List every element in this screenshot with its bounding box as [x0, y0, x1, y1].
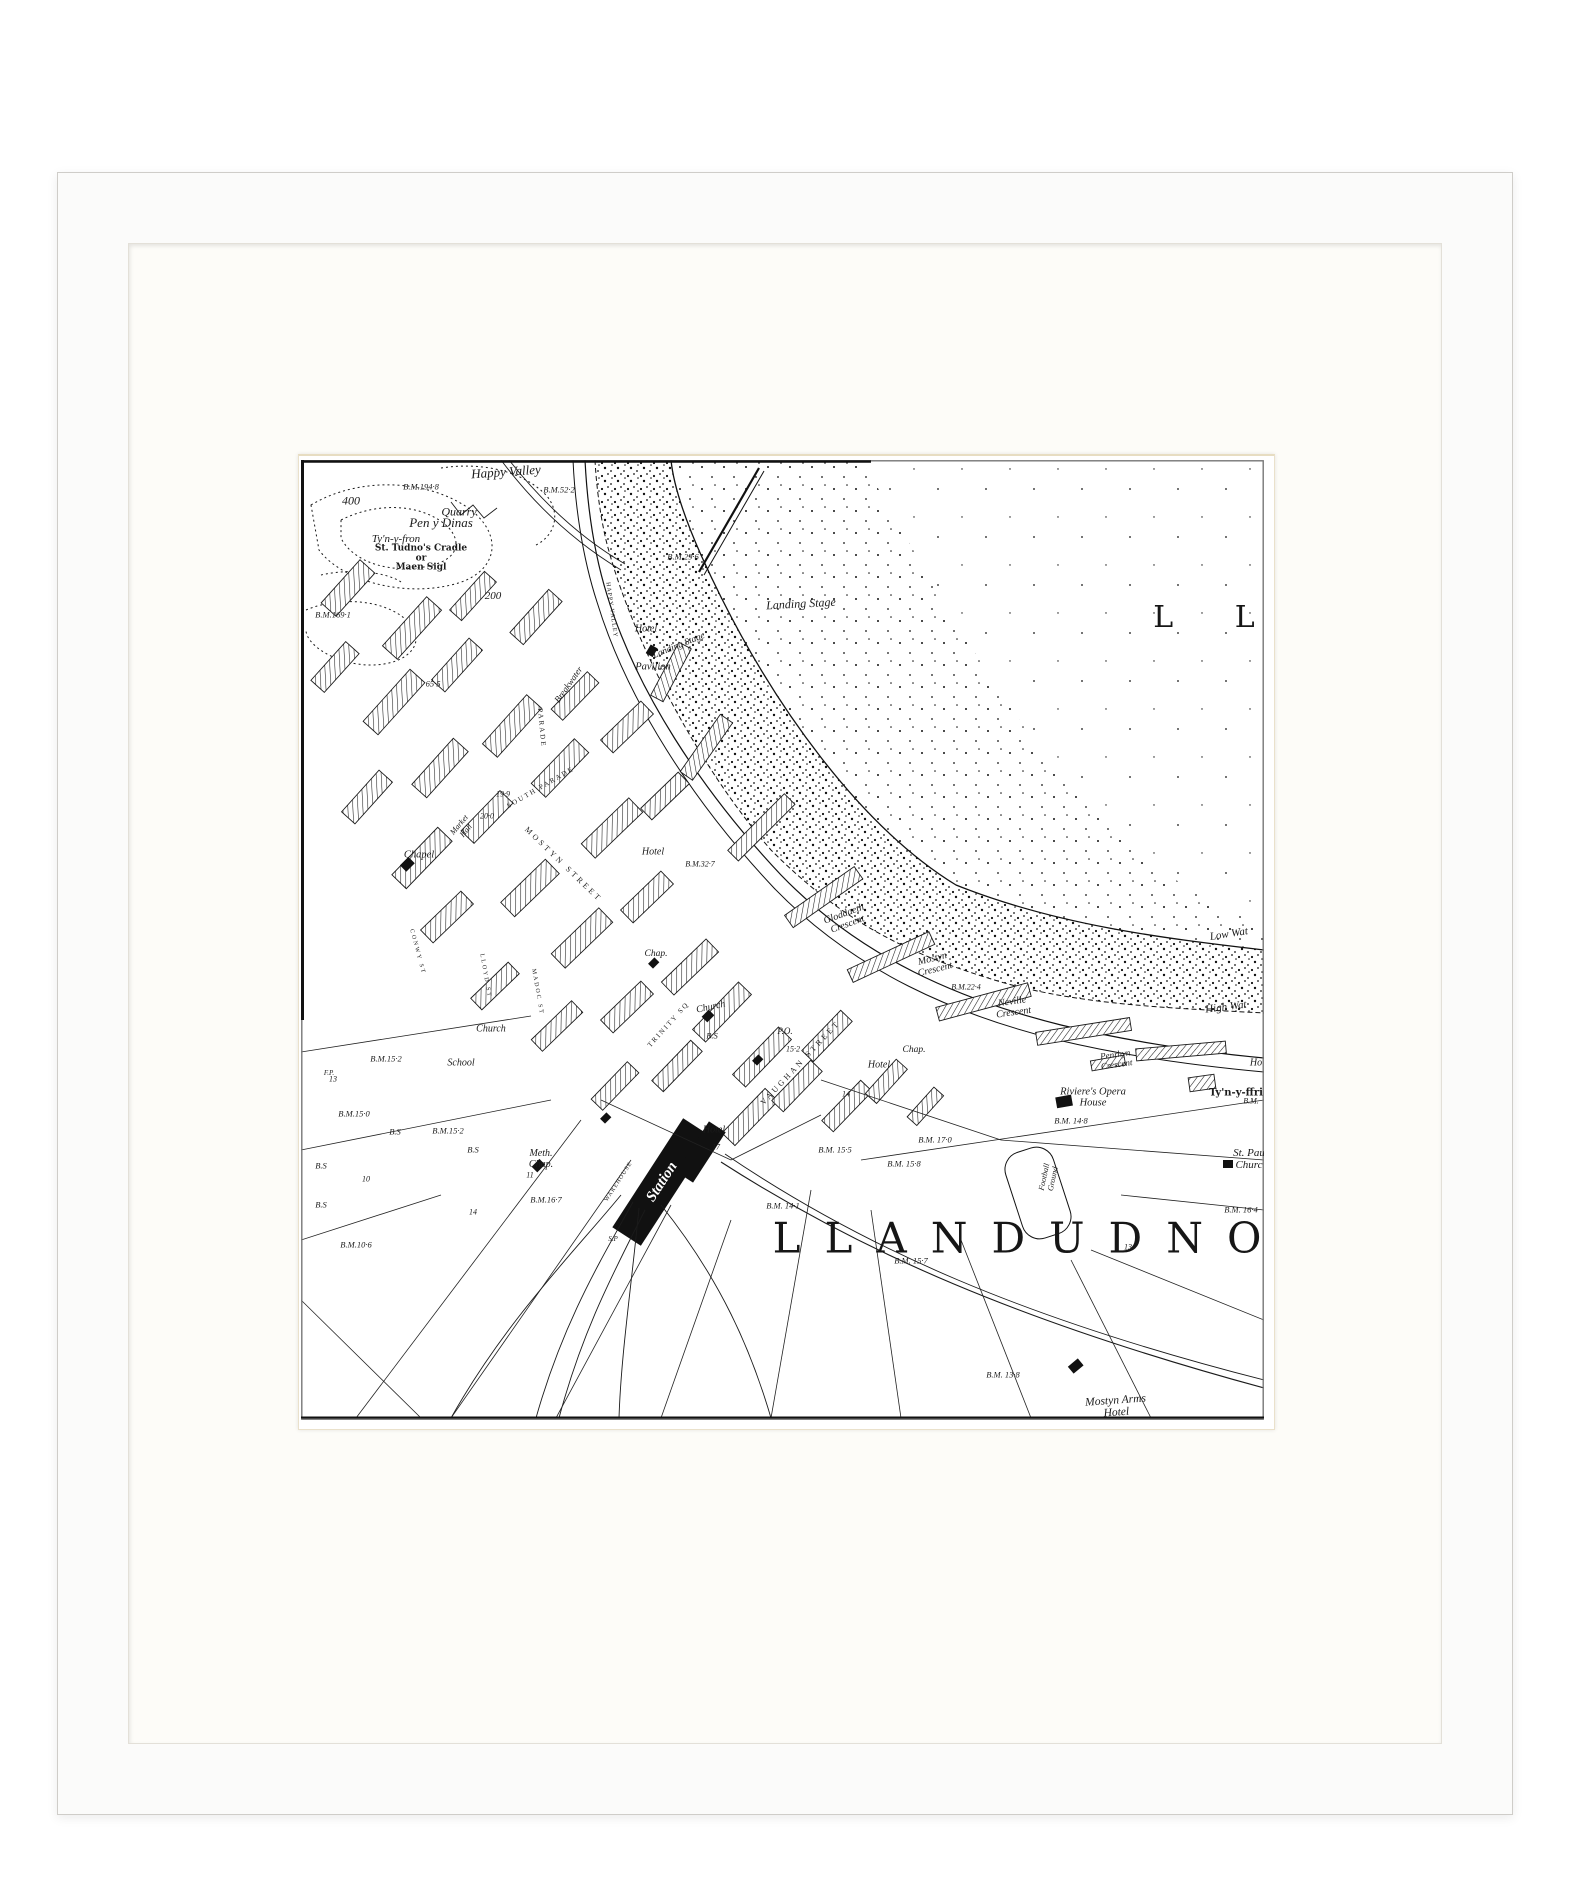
- map-label-church-trinity: Church: [695, 1000, 726, 1017]
- map-label-pen-y-dinas: Pen y Dinas: [409, 516, 473, 530]
- map-label-breakwater: Breakwater: [553, 665, 585, 705]
- map-area: L LLLANDUDNOHappy ValleyB.M.194·8B.M.52·…: [301, 460, 1264, 1420]
- map-label-po: P.O.: [777, 1027, 792, 1037]
- map-label-chapel-left: Chapel: [404, 849, 434, 860]
- map-label-bm-15-5: B.M. 15·5: [818, 1145, 852, 1154]
- map-label-bm-194-8: B.M.194·8: [403, 482, 439, 491]
- map-label-bm-22-4: B.M.22·4: [951, 984, 981, 993]
- map-label-bm-52-2: B.M.52·2: [543, 485, 574, 494]
- map-label-num-200: 200: [485, 591, 502, 603]
- map-label-station: Station: [643, 1159, 681, 1205]
- map-label-bs-4: B.S: [315, 1161, 327, 1170]
- map-label-chap-trinity: Chap.: [645, 949, 668, 959]
- map-label-happy-valley: Happy Valley: [471, 463, 541, 482]
- map-label-mostyn-arms: Mostyn Arms Hotel: [1085, 1393, 1147, 1420]
- map-label-num-65-5: 65·5: [426, 679, 441, 688]
- map-label-num-11: 11: [526, 1172, 533, 1181]
- map-label-bs-2: B.S: [389, 1127, 401, 1136]
- map-label-pavilion: Pavilion: [635, 661, 671, 672]
- map-label-ho-cut: Ho: [1250, 1059, 1262, 1070]
- map-label-num-15-2: 15·2: [786, 1046, 800, 1055]
- map-label-bm-32-7: B.M.32·7: [685, 861, 715, 870]
- map-label-bm-15-8: B.M. 15·8: [887, 1159, 921, 1168]
- map-label-low-water: Low Wat: [1209, 926, 1249, 944]
- map-label-num-19-9: 19·9: [496, 791, 510, 800]
- map-label-meth-chap: Meth. Chap.: [529, 1149, 553, 1171]
- map-label-bs-5: B.S: [315, 1200, 327, 1209]
- map-label-bm-10-6: B.M.10·6: [340, 1240, 371, 1249]
- map-label-bm-16-7: B.M.16·7: [530, 1195, 561, 1204]
- map-label-happy-valley-rd: HAPPY VALLEY: [604, 582, 618, 638]
- map-label-hotel-pier: Hotel: [635, 625, 657, 636]
- map-label-bm-13-8: B.M. 13·8: [986, 1370, 1020, 1379]
- map-label-num-14b: 14: [469, 1209, 477, 1218]
- map-label-num-10: 10: [362, 1176, 370, 1185]
- page-background: { "frame": { "frame_color": "#fbfbfa", "…: [0, 0, 1569, 1890]
- map-label-fp: F.P.: [324, 1070, 334, 1078]
- map-label-num-17: 17: [712, 1144, 720, 1153]
- map-label-bm-17-0: B.M. 17·0: [918, 1135, 952, 1144]
- map-label-bay-name: L L: [1153, 602, 1264, 634]
- map-label-mostyn-street: MOSTYN STREET: [523, 826, 604, 905]
- map-label-warehouse: WAREHOUSE: [604, 1161, 634, 1203]
- map-label-num-20-0: 20·0: [480, 813, 494, 822]
- map-label-num-400: 400: [342, 495, 360, 508]
- map-labels: L LLLANDUDNOHappy ValleyB.M.194·8B.M.52·…: [301, 460, 1264, 1420]
- map-label-st-tudnos: St. Tudno's Cradle or Maen Sigl: [375, 544, 467, 573]
- map-label-bs-1: B.S: [706, 1031, 718, 1040]
- map-label-conwy-st: CONWY ST: [408, 928, 426, 975]
- map-label-num-14a: 14: [842, 1091, 850, 1100]
- map-label-church-left: Church: [476, 1025, 506, 1036]
- map-label-hotel-mostyn: Hotel: [642, 848, 664, 859]
- map-label-bm-14-1: B.M. 14·1: [766, 1201, 800, 1210]
- map-label-bm-14-8: B.M. 14·8: [1054, 1116, 1088, 1125]
- map-label-hotel-right: Hotel: [868, 1061, 890, 1072]
- map-label-bm-15-2b: B.M.15·2: [432, 1126, 463, 1135]
- map-label-mostyn-cres: Mostyn Crescent: [914, 950, 953, 979]
- map-label-parade-st: PARADE: [536, 708, 547, 748]
- map-label-vaughan-street: VAUGHAN STREET: [759, 1019, 842, 1107]
- map-label-lloyd-st: LLOYD ST: [478, 953, 492, 998]
- map-label-high-water: High Wat: [1205, 1000, 1248, 1017]
- map-label-bm-29-6: B.M.29·6: [667, 552, 698, 561]
- map-label-bm-15-0: B.M.15·0: [338, 1109, 369, 1118]
- map-label-town-name: LLANDUDNO: [773, 1215, 1264, 1260]
- map-label-bm-15-2a: B.M.15·2: [370, 1054, 401, 1063]
- map-label-gloddaeth-cres: Gloddaeth Crescent: [822, 903, 869, 938]
- map-print-paper: L LLLANDUDNOHappy ValleyB.M.194·8B.M.52·…: [298, 454, 1275, 1430]
- map-label-madoc-st: MADOC ST: [530, 968, 545, 1015]
- map-label-penrhyn-cres: Penrhyn Crescent: [1099, 1048, 1133, 1072]
- map-label-bm-15-7: B.M. 15·7: [894, 1256, 928, 1265]
- map-label-bm-cut: B.M.: [1243, 1098, 1259, 1107]
- map-label-bm-169-1: B.M.169·1: [315, 610, 351, 619]
- map-label-neville-cres: Neville Crescent: [994, 995, 1032, 1021]
- map-label-market-hall: Market Hall: [449, 814, 477, 843]
- map-label-bm-16-4: B.M. 16·4: [1224, 1205, 1258, 1214]
- map-label-south-parade: SOUTH PARADE: [506, 766, 576, 811]
- map-label-sp: S.P: [608, 1236, 618, 1244]
- map-label-school: School: [447, 1059, 474, 1070]
- picture-frame: L LLLANDUDNOHappy ValleyB.M.194·8B.M.52·…: [57, 172, 1513, 1815]
- map-label-football-ground: Football Ground: [1038, 1163, 1061, 1194]
- map-label-landing-stage-2: Landing Stage: [652, 631, 707, 661]
- map-label-bs-3: B.S: [467, 1145, 479, 1154]
- map-label-chap-right: Chap.: [903, 1045, 926, 1055]
- map-label-trinity-sq: TRINITY SQ: [647, 1001, 692, 1049]
- map-label-hotel-station: Hotel: [703, 1126, 725, 1137]
- map-label-st-pauls: St. Pau Churc: [1233, 1148, 1264, 1172]
- map-label-opera-house: Riviere's Opera House: [1060, 1087, 1126, 1110]
- map-label-landing-stage: Landing Stage: [766, 596, 836, 613]
- map-label-num-13b: 13: [1124, 1244, 1132, 1253]
